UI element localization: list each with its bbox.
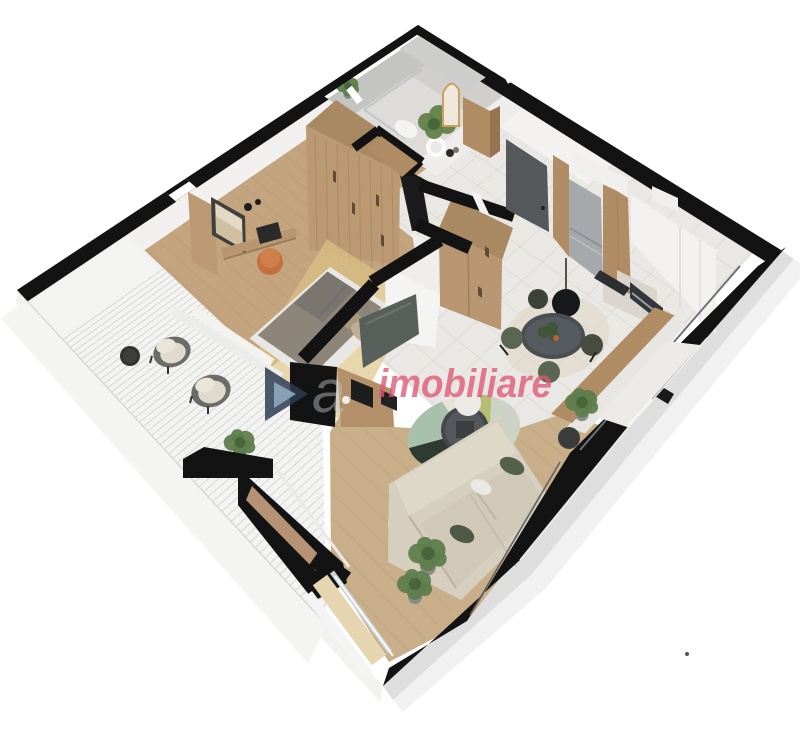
svg-text:imobiliare: imobiliare: [378, 362, 552, 406]
svg-text:a: a: [312, 358, 345, 425]
